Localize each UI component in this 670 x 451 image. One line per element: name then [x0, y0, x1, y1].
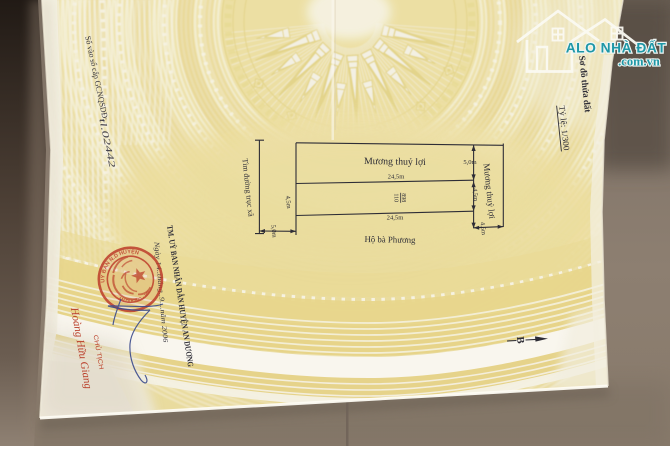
- svg-text:Hộ bà Phương: Hộ bà Phương: [364, 234, 416, 245]
- svg-text:4,5m: 4,5m: [479, 222, 487, 236]
- svg-text:5,0m: 5,0m: [463, 159, 477, 166]
- svg-text:ALO NHÀ ĐẤT: ALO NHÀ ĐẤT: [566, 40, 667, 56]
- svg-text:898: 898: [400, 193, 406, 202]
- svg-text:24,5m: 24,5m: [387, 215, 405, 222]
- svg-text:Mương thuỷ lợi: Mương thuỷ lợi: [364, 156, 426, 168]
- svg-text:4,5m: 4,5m: [471, 188, 479, 202]
- svg-text:B: B: [514, 336, 526, 344]
- svg-text:5,0m: 5,0m: [269, 224, 277, 238]
- svg-text:110: 110: [393, 193, 399, 202]
- svg-text:24,5m: 24,5m: [388, 174, 406, 181]
- svg-text:4,5m: 4,5m: [284, 195, 292, 209]
- svg-text:.com.vn: .com.vn: [618, 55, 660, 69]
